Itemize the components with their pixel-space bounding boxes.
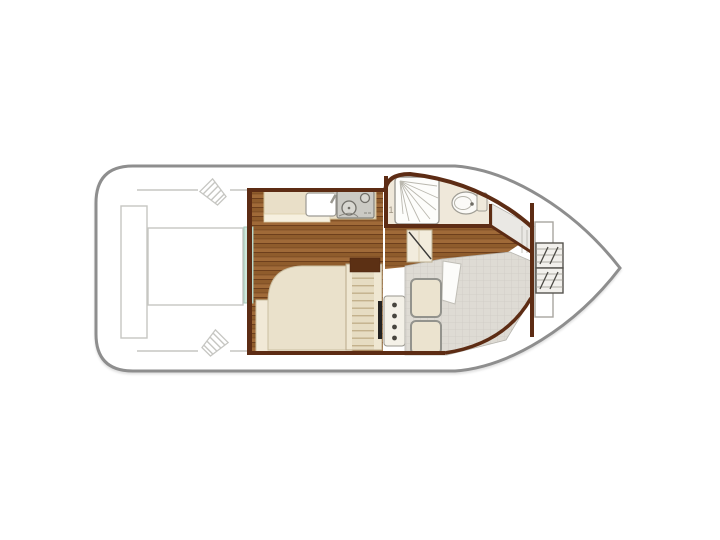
boat-floor-plan: 1 [0, 0, 720, 540]
windshield-bulkhead [530, 203, 534, 337]
companionway-steps [346, 264, 382, 350]
cabin-wall-top [247, 188, 387, 192]
stern-bench [121, 206, 147, 338]
bathroom-wall-bottom [384, 224, 492, 228]
galley-counter [264, 190, 376, 222]
cabin-wall-left [247, 188, 252, 355]
berth-mattress [268, 266, 352, 350]
bow-step-top [536, 243, 563, 268]
helm-wheel-bar [378, 301, 382, 339]
bathroom-wall-right [489, 204, 492, 226]
stern-sunpad [148, 228, 243, 305]
stove-burner-small [361, 194, 370, 203]
cockpit-seat-bottom [411, 321, 441, 354]
step-locker [350, 258, 380, 272]
two-burner-stove [337, 191, 374, 218]
toilet [452, 192, 480, 214]
bathroom-door [407, 230, 432, 262]
galley-sink [306, 193, 336, 216]
cabin-wall-bottom [247, 351, 445, 355]
floor-plan-canvas: 1 [0, 0, 720, 540]
shower-label: 1 [388, 205, 393, 215]
bow-step-bottom [536, 268, 563, 293]
bathroom-wall-left [384, 176, 388, 226]
cockpit-seat-top [411, 279, 441, 317]
